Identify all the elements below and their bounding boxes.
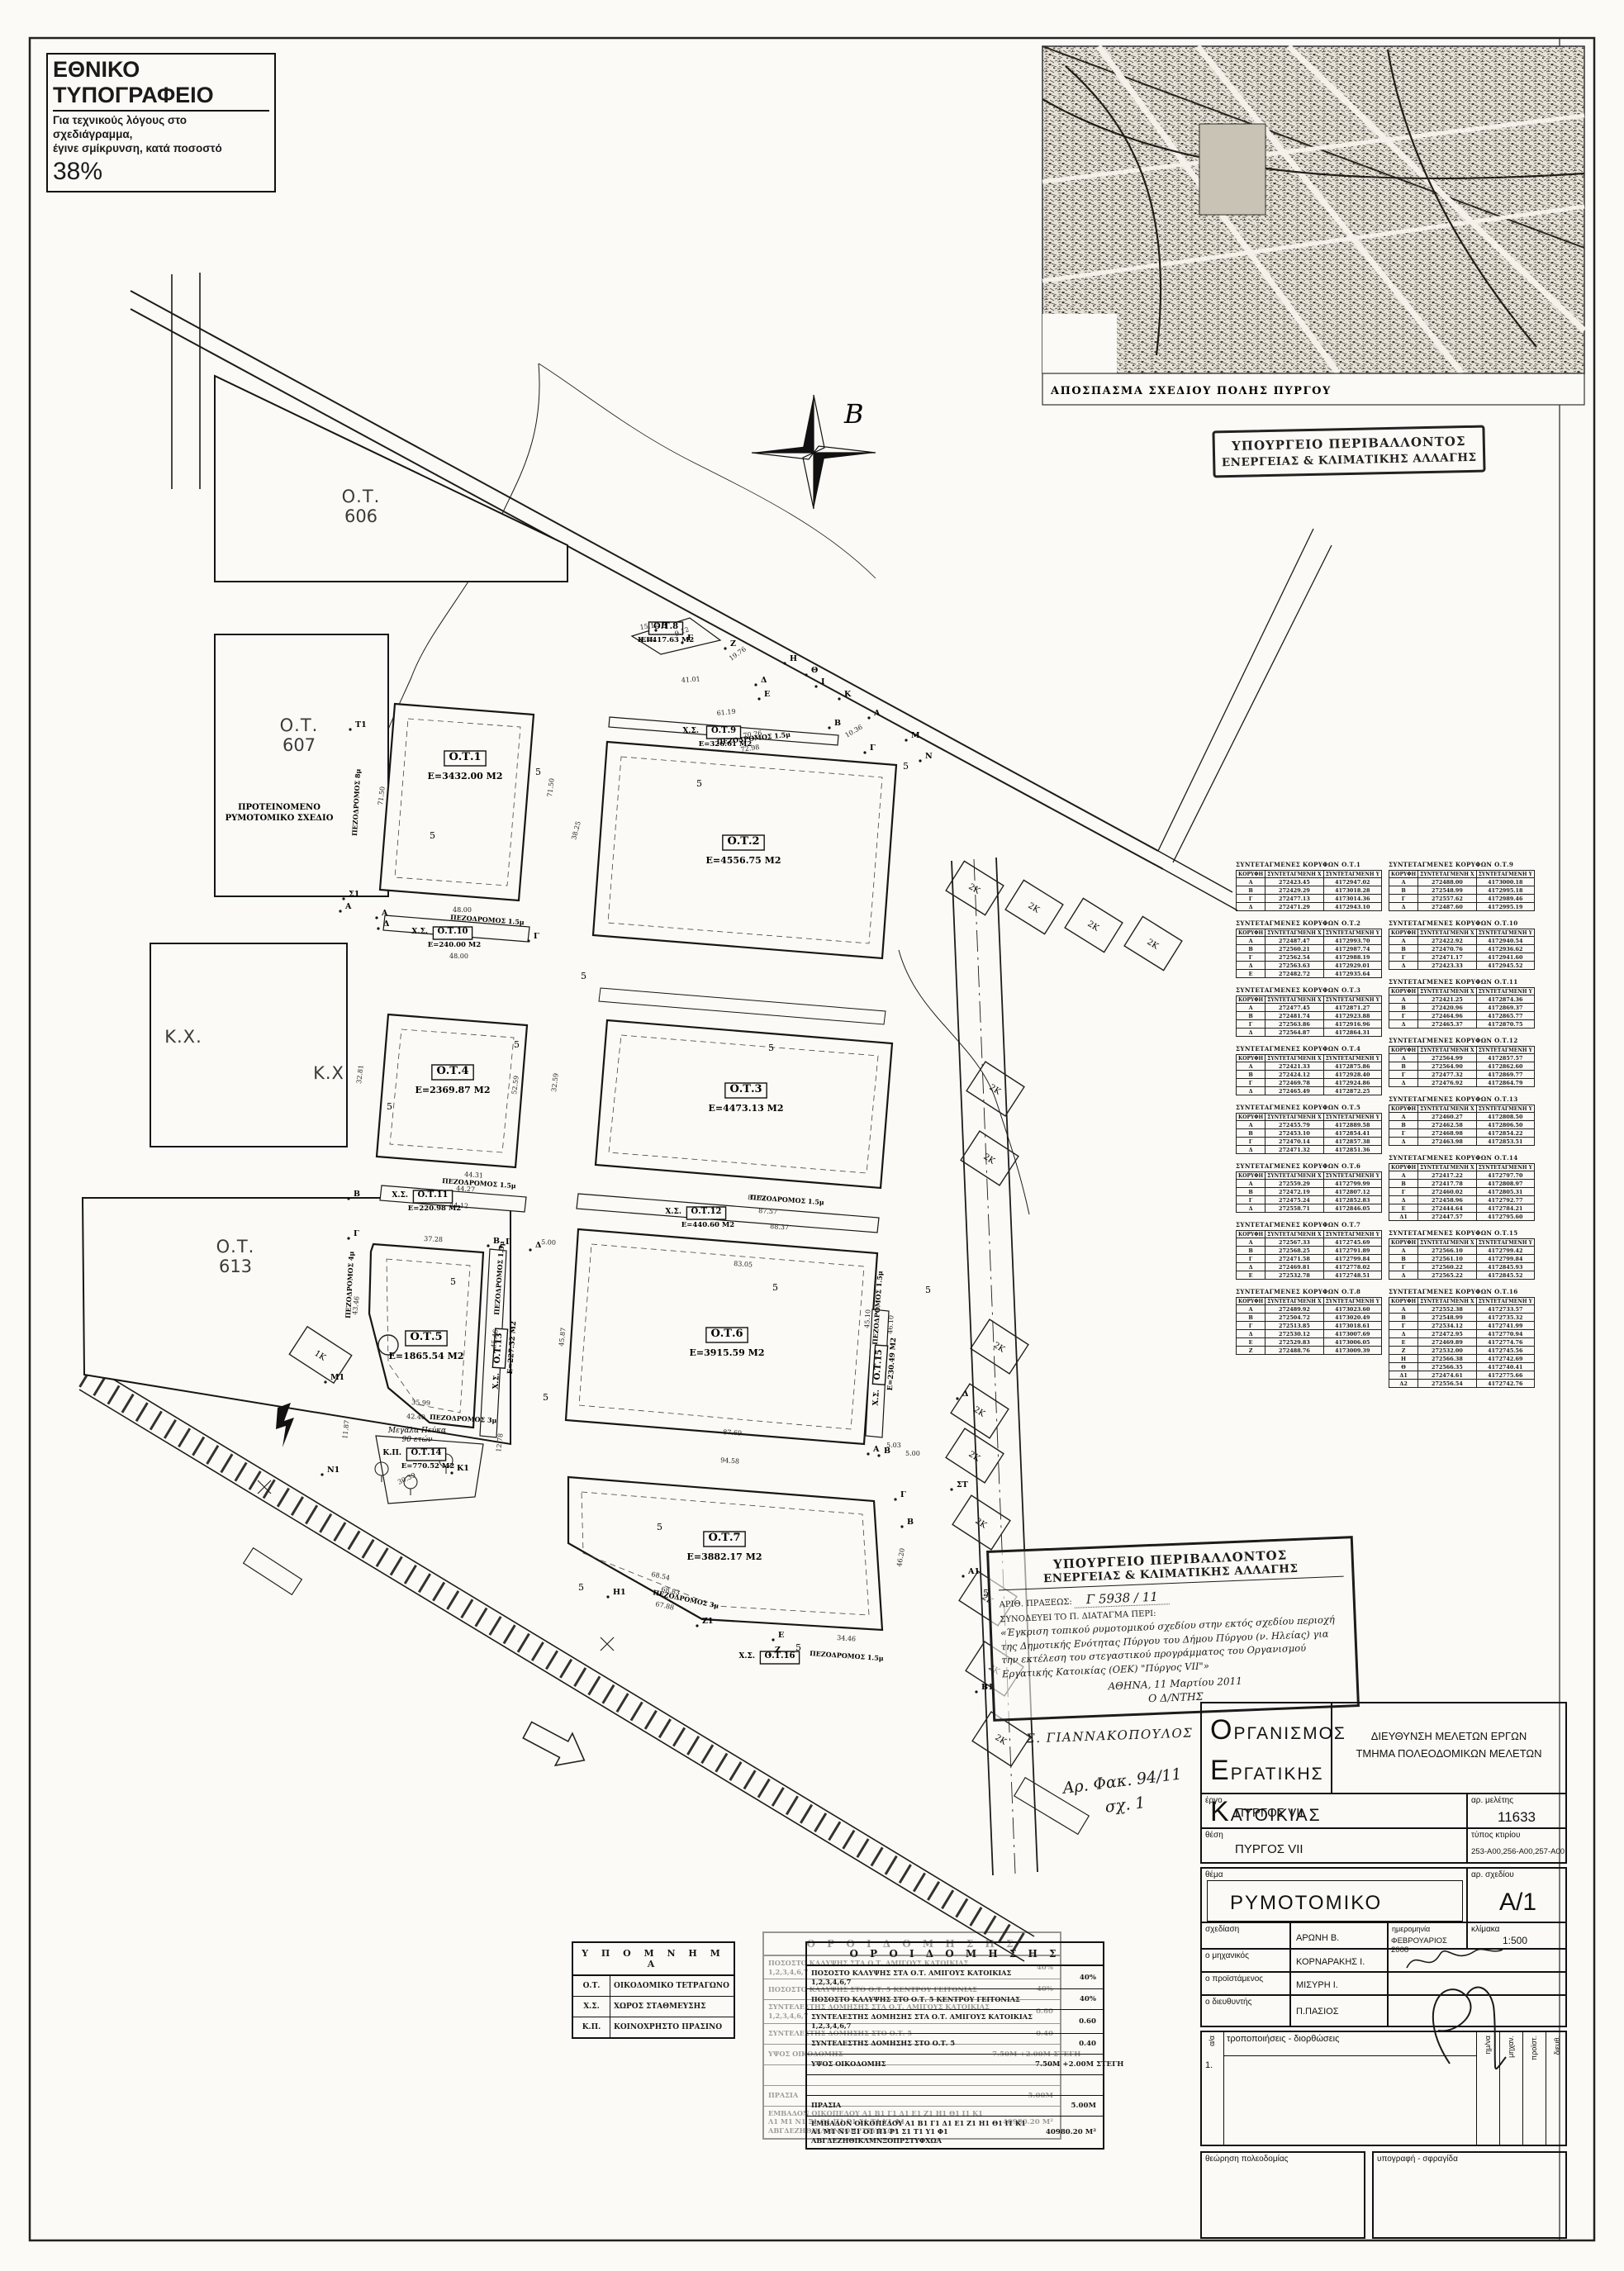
dimension-label: 38.25 bbox=[570, 820, 582, 840]
org-logo-cell: ΟΡΓΑΝΙΣΜΟΣΕΡΓΑΤΙΚΗΣΚΑΤΟΙΚΙΑΣ bbox=[1200, 1702, 1332, 1794]
strip-label: Χ.Σ.Ο.Τ.16 bbox=[738, 1651, 799, 1664]
city-map-excerpt: ΑΠΟΣΠΑΣΜΑ ΣΧΕΔΙΟΥ ΠΟΛΗΣ ΠΥΡΓΟΥ bbox=[1042, 46, 1584, 405]
director-value: Π.ΠΑΣΙΟΣ bbox=[1296, 2007, 1339, 2017]
subject-value: ΡΥΜΟΤΟΜΙΚΟ bbox=[1230, 1892, 1382, 1915]
dimension-label: 46.10 bbox=[886, 1315, 895, 1334]
director-signature-cell bbox=[1387, 1994, 1567, 2027]
printing-note-line2: έγινε σμίκρυνση, κατά ποσοστό bbox=[53, 142, 222, 154]
svg-text:2Κ: 2Κ bbox=[1085, 919, 1100, 934]
setback-label: 5 bbox=[450, 1276, 456, 1287]
vertex-label: Μ bbox=[911, 731, 920, 740]
department-cell: ΔΙΕΥΘΥΝΣΗ ΜΕΛΕΤΩΝ ΕΡΓΩΝ ΤΜΗΜΑ ΠΟΛΕΟΔΟΜΙΚ… bbox=[1331, 1702, 1567, 1794]
setback-label: 5 bbox=[535, 767, 541, 777]
svg-text:Ο.Τ.12: Ο.Τ.12 bbox=[691, 1207, 721, 1216]
dimension-label: 5.00 bbox=[905, 1450, 920, 1457]
revision-row-1: 1. bbox=[1205, 2060, 1213, 2070]
svg-text:Ε=240.00 Μ2: Ε=240.00 Μ2 bbox=[428, 941, 481, 949]
ministry-stamp: ΥΠΟΥΡΓΕΙΟ ΠΕΡΙΒΑΛΛΟΝΤΟΣ ΕΝΕΡΓΕΙΑΣ & ΚΛΙΜ… bbox=[1212, 425, 1485, 478]
revisions-label: τροποποιήσεις - διορθώσεις bbox=[1227, 2034, 1339, 2044]
coordinate-table: ΣΥΝΤΕΤΑΓΜΕΝΕΣ ΚΟΡΥΦΩΝ Ο.Τ.4ΚΟΡΥΦΗΣΥΝΤΕΤΑ… bbox=[1236, 1045, 1373, 1095]
printing-office-title: ΕΘΝΙΚΟ ΤΥΠΟΓΡΑΦΕΙΟ bbox=[53, 57, 269, 112]
drawing-no-cell: αρ. σχεδίου Α/1 bbox=[1466, 1867, 1567, 1923]
file-note-line2: σχ. 1 bbox=[1104, 1794, 1147, 1817]
compass-rose: Β bbox=[752, 395, 876, 509]
engineer-label: ο μηχανικός bbox=[1205, 1951, 1249, 1960]
svg-text:Μεγάλα Πεύκα: Μεγάλα Πεύκα bbox=[387, 1426, 446, 1435]
dimension-label: 10.36 bbox=[844, 723, 864, 739]
planning-approval-cell: θεώρηση πολεοδομίας bbox=[1200, 2151, 1365, 2239]
svg-text:Κ.Π.: Κ.Π. bbox=[638, 636, 655, 644]
setback-label: 5 bbox=[696, 778, 702, 789]
vertex-label: Α bbox=[381, 909, 388, 918]
vertex-label: Α1 bbox=[967, 1567, 980, 1576]
vertex-label: Γ bbox=[870, 744, 876, 753]
svg-text:Κ.Π.: Κ.Π. bbox=[382, 1449, 401, 1457]
dimension-label: 87.69 bbox=[723, 1428, 742, 1437]
legend-row: Κ.Π.ΚΟΙΝΟΧΡΗΣΤΟ ΠΡΑΣΙΝΟ bbox=[573, 2017, 734, 2037]
coordinate-table: ΣΥΝΤΕΤΑΓΜΕΝΕΣ ΚΟΡΥΦΩΝ Ο.Τ.6ΚΟΡΥΦΗΣΥΝΤΕΤΑ… bbox=[1236, 1162, 1373, 1213]
coordinate-table: ΣΥΝΤΕΤΑΓΜΕΝΕΣ ΚΟΡΥΦΩΝ Ο.Τ.7ΚΟΡΥΦΗΣΥΝΤΕΤΑ… bbox=[1236, 1221, 1373, 1280]
vertex-label: Γ bbox=[687, 634, 693, 643]
svg-text:607: 607 bbox=[283, 735, 316, 755]
dimension-label: 61.19 bbox=[716, 708, 736, 717]
coordinate-table: ΣΥΝΤΕΤΑΓΜΕΝΕΣ ΚΟΡΥΦΩΝ Ο.Τ.9ΚΟΡΥΦΗΣΥΝΤΕΤΑ… bbox=[1389, 861, 1526, 911]
setback-label: 5 bbox=[581, 971, 586, 981]
svg-text:2Κ: 2Κ bbox=[973, 1517, 988, 1531]
dimension-label: 88.37 bbox=[770, 1223, 789, 1232]
coordinate-table: ΣΥΝΤΕΤΑΓΜΕΝΕΣ ΚΟΡΥΦΩΝ Ο.Τ.16ΚΟΡΥΦΗΣΥΝΤΕΤ… bbox=[1389, 1288, 1526, 1388]
vertex-label: Ε bbox=[778, 1631, 784, 1640]
coordinate-table: ΣΥΝΤΕΤΑΓΜΕΝΕΣ ΚΟΡΥΦΩΝ Ο.Τ.13ΚΟΡΥΦΗΣΥΝΤΕΤ… bbox=[1389, 1095, 1526, 1146]
coordinate-table: ΣΥΝΤΕΤΑΓΜΕΝΕΣ ΚΟΡΥΦΩΝ Ο.Τ.11ΚΟΡΥΦΗΣΥΝΤΕΤ… bbox=[1389, 978, 1526, 1029]
svg-text:Ο.Τ.1: Ο.Τ.1 bbox=[449, 751, 481, 763]
vertex-label: Ζ1 bbox=[702, 1617, 714, 1626]
dimension-label: 44.31 bbox=[464, 1171, 483, 1180]
terms-row: ΣΥΝΤΕΛΕΣΤΗΣ ΔΟΜΗΣΗΣ ΣΤΟ Ο.Τ. 50.40 bbox=[807, 2033, 1103, 2054]
coordinate-table: ΣΥΝΤΕΤΑΓΜΕΝΕΣ ΚΟΡΥΦΩΝ Ο.Τ.8ΚΟΡΥΦΗΣΥΝΤΕΤΑ… bbox=[1236, 1288, 1373, 1355]
svg-text:90 ετών: 90 ετών bbox=[402, 1435, 433, 1444]
vertex-label: Α bbox=[872, 1445, 880, 1454]
vertex-label: Β bbox=[661, 621, 667, 630]
dimension-label: 34.46 bbox=[837, 1634, 856, 1643]
svg-text:Κ.Χ.: Κ.Χ. bbox=[164, 1027, 202, 1047]
vertex-label: Μ1 bbox=[330, 1373, 344, 1382]
svg-text:Χ.Σ.: Χ.Σ. bbox=[392, 1191, 408, 1200]
svg-text:Χ.Σ.: Χ.Σ. bbox=[682, 727, 699, 735]
signature-seal-cell: υπογραφή - σφραγίδα bbox=[1372, 2151, 1567, 2239]
terms-row: ΣΥΝΤΕΛΕΣΤΗΣ ΔΟΜΗΣΗΣ ΣΤΑ Ο.Τ. ΑΜΙΓΟΥΣ ΚΑΤ… bbox=[807, 2009, 1103, 2032]
pedestrian-road-label: ΠΕΖΟΔΡΟΜΟΣ 1.5μ bbox=[810, 1649, 884, 1662]
svg-text:Ο.Τ.10: Ο.Τ.10 bbox=[437, 927, 468, 936]
engineer-signature-cell bbox=[1387, 1948, 1567, 1973]
vertex-label: Γ bbox=[900, 1490, 906, 1499]
approval-stamp: ΥΠΟΥΡΓΕΙΟ ΠΕΡΙΒΑΛΛΟΝΤΟΣ ΕΝΕΡΓΕΙΑΣ & ΚΛΙΜ… bbox=[986, 1536, 1360, 1721]
drawing-no-value: Α/1 bbox=[1499, 1889, 1536, 1917]
vertex-label: Κ bbox=[844, 690, 852, 699]
vertex-label: Β bbox=[834, 719, 841, 728]
legend-title: Υ Π Ο Μ Ν Η Μ Α bbox=[573, 1943, 734, 1976]
engineer-value: ΚΟΡΝΑΡΑΚΗΣ Ι. bbox=[1296, 1957, 1365, 1967]
drawing-sheet: ΑΠΟΣΠΑΣΜΑ ΣΧΕΔΙΟΥ ΠΟΛΗΣ ΠΥΡΓΟΥ bbox=[0, 0, 1624, 2271]
dimension-label: 32.81 bbox=[355, 1064, 365, 1084]
vertex-label: Δ bbox=[535, 1241, 542, 1250]
dimension-label: 94.58 bbox=[720, 1456, 739, 1466]
setback-label: 5 bbox=[578, 1582, 584, 1593]
building-2k: 2Κ bbox=[951, 1384, 1009, 1438]
svg-text:2Κ: 2Κ bbox=[1026, 901, 1041, 915]
subject-cell: θέμα ΡΥΜΟΤΟΜΙΚΟ bbox=[1200, 1867, 1468, 1923]
setback-label: 5 bbox=[657, 1522, 662, 1532]
svg-text:Ε=3882.17 Μ2: Ε=3882.17 Μ2 bbox=[686, 1551, 762, 1562]
building-terms-table: Ο Ρ Ο Ι Δ Ο Μ Η Σ Η Σ ΠΟΣΟΣΤΟ ΚΑΛΥΨΗΣ ΣΤ… bbox=[805, 1941, 1104, 2150]
dept-line1: ΔΙΕΥΘΥΝΣΗ ΜΕΛΕΤΩΝ ΕΡΓΩΝ bbox=[1332, 1728, 1565, 1746]
dept-line2: ΤΜΗΜΑ ΠΟΛΕΟΔΟΜΙΚΩΝ ΜΕΛΕΤΩΝ bbox=[1332, 1746, 1565, 1763]
coordinate-table: ΣΥΝΤΕΤΑΓΜΕΝΕΣ ΚΟΡΥΦΩΝ Ο.Τ.5ΚΟΡΥΦΗΣΥΝΤΕΤΑ… bbox=[1236, 1104, 1373, 1154]
svg-text:Ο.Τ.2: Ο.Τ.2 bbox=[727, 835, 759, 848]
svg-text:613: 613 bbox=[219, 1257, 252, 1276]
coordinate-table: ΣΥΝΤΕΤΑΓΜΕΝΕΣ ΚΟΡΥΦΩΝ Ο.Τ.14ΚΟΡΥΦΗΣΥΝΤΕΤ… bbox=[1389, 1154, 1526, 1221]
dimension-label: 48.00 bbox=[453, 906, 472, 914]
setback-label: 5 bbox=[768, 1043, 774, 1053]
vertex-label: Δ bbox=[383, 919, 390, 929]
vertex-label: Α bbox=[344, 902, 352, 911]
ministry-stamp-line2: ΕΝΕΡΓΕΙΑΣ & ΚΛΙΜΑΤΙΚΗΣ ΑΛΛΑΓΗΣ bbox=[1218, 451, 1479, 470]
dimension-label: 45.87 bbox=[558, 1327, 567, 1347]
vertex-label: Ν bbox=[925, 752, 933, 761]
building-2k: 2Κ bbox=[966, 1062, 1024, 1116]
supervisor-value: ΜΙΣΥΡΗ Ι. bbox=[1296, 1980, 1338, 1990]
location-value: ΠΥΡΓΟΣ VII bbox=[1235, 1842, 1303, 1856]
vertex-label: Η1 bbox=[613, 1588, 626, 1597]
terms-row: ΠΡΑΣΙΑ5.00Μ bbox=[807, 2095, 1103, 2116]
svg-text:Κ.Χ: Κ.Χ bbox=[313, 1063, 344, 1083]
svg-text:Ε=230.49 Μ2: Ε=230.49 Μ2 bbox=[886, 1337, 898, 1391]
terms-row: ΠΟΣΟΣΤΟ ΚΑΛΥΨΗΣ ΣΤΟ Ο.Τ. 5 ΚΕΝΤΡΟΥ ΓΕΙΤΟ… bbox=[807, 1988, 1103, 2009]
coordinate-tables-right: ΣΥΝΤΕΤΑΓΜΕΝΕΣ ΚΟΡΥΦΩΝ Ο.Τ.9ΚΟΡΥΦΗΣΥΝΤΕΤΑ… bbox=[1389, 861, 1526, 1396]
printing-office-note: ΕΘΝΙΚΟ ΤΥΠΟΓΡΑΦΕΙΟ Για τεχνικούς λόγους … bbox=[46, 53, 276, 192]
dimension-label: 87.71 bbox=[748, 1194, 767, 1203]
setback-label: 5 bbox=[387, 1101, 392, 1112]
reduction-percent: 38% bbox=[53, 158, 102, 185]
vertex-label: Θ bbox=[811, 666, 818, 675]
coordinate-table: ΣΥΝΤΕΤΑΓΜΕΝΕΣ ΚΟΡΥΦΩΝ Ο.Τ.15ΚΟΡΥΦΗΣΥΝΤΕΤ… bbox=[1389, 1229, 1526, 1280]
svg-text:Ε=1865.54 Μ2: Ε=1865.54 Μ2 bbox=[388, 1351, 463, 1361]
dimension-label: 12.78 bbox=[495, 1432, 505, 1452]
setback-label: 5 bbox=[514, 1039, 520, 1050]
vertex-label: Β bbox=[907, 1518, 914, 1527]
legend-row: Χ.Σ.ΧΩΡΟΣ ΣΤΑΘΜΕΥΣΗΣ bbox=[573, 1996, 734, 2017]
coordinate-table: ΣΥΝΤΕΤΑΓΜΕΝΕΣ ΚΟΡΥΦΩΝ Ο.Τ.1ΚΟΡΥΦΗΣΥΝΤΕΤΑ… bbox=[1236, 861, 1373, 911]
revision-col-label: μηχαν. bbox=[1507, 2036, 1515, 2058]
dimension-label: 83.05 bbox=[734, 1260, 753, 1269]
svg-text:Ε=4473.13 Μ2: Ε=4473.13 Μ2 bbox=[708, 1103, 783, 1114]
vertex-label: Γ bbox=[534, 932, 539, 941]
svg-text:2Κ: 2Κ bbox=[981, 1152, 996, 1166]
vertex-label: Ι bbox=[821, 677, 825, 687]
svg-text:606: 606 bbox=[344, 506, 378, 526]
setback-label: 5 bbox=[772, 1282, 778, 1293]
building-2k: 2Κ bbox=[946, 861, 1004, 915]
supervisor-label: ο προϊστάμενος bbox=[1205, 1974, 1263, 1984]
vertex-label: Ν1 bbox=[327, 1466, 340, 1475]
setback-label: 5 bbox=[903, 761, 909, 772]
svg-text:Ο.Τ.4: Ο.Τ.4 bbox=[436, 1065, 468, 1077]
dimension-label: 44.12 bbox=[449, 1201, 468, 1210]
north-arrow-icon bbox=[276, 1403, 294, 1447]
vertex-label: Β bbox=[354, 1190, 360, 1199]
terms-row bbox=[807, 2074, 1103, 2095]
svg-text:Ο.Τ.3: Ο.Τ.3 bbox=[729, 1083, 762, 1095]
dimension-label: 87.57 bbox=[758, 1207, 777, 1216]
building-2k: 2Κ bbox=[971, 1319, 1028, 1374]
area-name: Ο.Τ.613 bbox=[216, 1237, 255, 1276]
building-2k: 2Κ bbox=[1005, 880, 1063, 934]
svg-text:Ε=440.60 Μ2: Ε=440.60 Μ2 bbox=[681, 1221, 734, 1229]
svg-text:Ε=2369.87 Μ2: Ε=2369.87 Μ2 bbox=[415, 1085, 490, 1095]
svg-text:2Κ: 2Κ bbox=[993, 1733, 1008, 1747]
svg-text:Ο.Τ.7: Ο.Τ.7 bbox=[708, 1532, 740, 1544]
protocol-label: ΑΡΙΘ. ΠΡΑΞΕΩΣ: bbox=[999, 1598, 1072, 1610]
vertex-label: Γ bbox=[506, 1238, 511, 1247]
svg-text:2Κ: 2Κ bbox=[966, 882, 981, 896]
svg-text:Χ.Σ.: Χ.Σ. bbox=[492, 1373, 501, 1390]
ministry-stamp-line1: ΥΠΟΥΡΓΕΙΟ ΠΕΡΙΒΑΛΛΟΝΤΟΣ bbox=[1218, 434, 1479, 454]
svg-text:Ο.Τ.6: Ο.Τ.6 bbox=[710, 1328, 743, 1340]
svg-text:Χ.Σ.: Χ.Σ. bbox=[411, 928, 428, 936]
svg-text:Χ.Σ.: Χ.Σ. bbox=[872, 1390, 881, 1406]
printing-note-line1: Για τεχνικούς λόγους στο σχεδιάγραμμα, bbox=[53, 114, 187, 140]
terms-row: ΕΜΒΑΔΟΝ ΟΙΚΟΠΕΔΟΥ Α1 Β1 Γ1 Δ1 Ε1 Ζ1 Η1 Θ… bbox=[807, 2116, 1103, 2148]
dimension-label: 37.28 bbox=[424, 1235, 443, 1243]
project-value: ΠΥΡΓΟΣ VII bbox=[1235, 1806, 1303, 1820]
building-2k: 2Κ bbox=[1065, 898, 1123, 952]
svg-text:Ε=4556.75 Μ2: Ε=4556.75 Μ2 bbox=[705, 855, 781, 866]
vertex-label: Κ1 bbox=[457, 1464, 469, 1473]
signature-seal-label: υπογραφή - σφραγίδα bbox=[1377, 2155, 1458, 2164]
building-type-cell: τύπος κτιρίου 253-Α00,256-Α00,257-Α00 bbox=[1466, 1827, 1567, 1864]
svg-text:Ε=3432.00 Μ2: Ε=3432.00 Μ2 bbox=[427, 771, 502, 782]
vertex-label: ΣΤ bbox=[957, 1480, 968, 1489]
director-label: ο διευθυντής bbox=[1205, 1998, 1251, 2007]
svg-text:Ε=3915.59 Μ2: Ε=3915.59 Μ2 bbox=[689, 1347, 764, 1358]
svg-text:Χ.Σ.: Χ.Σ. bbox=[665, 1208, 681, 1216]
vertex-label: Σ1 bbox=[349, 890, 359, 899]
study-no-value: 11633 bbox=[1498, 1809, 1536, 1826]
vertex-label: Β bbox=[884, 1447, 890, 1456]
svg-text:Ο.Τ.11: Ο.Τ.11 bbox=[417, 1190, 448, 1200]
svg-text:Ο.Τ.: Ο.Τ. bbox=[280, 715, 319, 735]
area-name: Κ.Χ. bbox=[164, 1027, 202, 1047]
svg-text:ΠΡΟΤΕΙΝΟΜΕΝΟ: ΠΡΟΤΕΙΝΟΜΕΝΟ bbox=[238, 803, 321, 812]
dimension-label: 72.98 bbox=[740, 744, 760, 753]
drafting-value: ΑΡΩΝΗ Β. bbox=[1296, 1933, 1339, 1943]
svg-text:Ο.Τ.5: Ο.Τ.5 bbox=[410, 1331, 442, 1343]
vertex-label: Γ bbox=[354, 1229, 359, 1238]
dimension-label: 71.50 bbox=[546, 777, 556, 797]
setback-label: 5 bbox=[795, 1642, 801, 1653]
dimension-label: 42.40 bbox=[406, 1413, 425, 1421]
org-name-line: ΕΡΓΑΤΙΚΗΣ bbox=[1210, 1751, 1331, 1791]
revision-col-label: προϊστ. bbox=[1530, 2036, 1538, 2060]
dimension-label: 11.87 bbox=[341, 1419, 351, 1439]
dimension-label: 41.01 bbox=[681, 675, 700, 684]
svg-text:ΡΥΜΟΤΟΜΙΚΟ ΣΧΕΔΙΟ: ΡΥΜΟΤΟΜΙΚΟ ΣΧΕΔΙΟ bbox=[226, 814, 334, 823]
revision-col-label: ημ/να bbox=[1484, 2036, 1492, 2054]
svg-text:Ο.Τ.: Ο.Τ. bbox=[342, 487, 381, 506]
setback-label: 5 bbox=[925, 1285, 931, 1295]
north-label: Β bbox=[843, 398, 864, 430]
dimension-label: 48.00 bbox=[449, 953, 468, 960]
dimension-label: 35.99 bbox=[411, 1399, 430, 1407]
building-terms-title: Ο Ρ Ο Ι Δ Ο Μ Η Σ Η Σ bbox=[807, 1943, 1103, 1966]
scale-value: 1:500 bbox=[1503, 1935, 1527, 1946]
coordinate-tables-left: ΣΥΝΤΕΤΑΓΜΕΝΕΣ ΚΟΡΥΦΩΝ Ο.Τ.1ΚΟΡΥΦΗΣΥΝΤΕΤΑ… bbox=[1236, 861, 1373, 1363]
svg-text:2Κ: 2Κ bbox=[1145, 938, 1160, 952]
coordinate-table: ΣΥΝΤΕΤΑΓΜΕΝΕΣ ΚΟΡΥΦΩΝ Ο.Τ.12ΚΟΡΥΦΗΣΥΝΤΕΤ… bbox=[1389, 1037, 1526, 1087]
svg-text:Ο.Τ.: Ο.Τ. bbox=[216, 1237, 255, 1257]
dimension-label: 45.10 bbox=[863, 1309, 872, 1328]
decree-subject-handwritten: «Έγκριση τοπικού ρυμοτομικού σχεδίου στη… bbox=[1000, 1613, 1347, 1681]
dimension-label: 44.27 bbox=[456, 1185, 475, 1194]
location-cell: θέση ΠΥΡΓΟΣ VII bbox=[1200, 1827, 1468, 1864]
direction-arrow-icon bbox=[519, 1714, 593, 1776]
area-name: Ο.Τ.606 bbox=[342, 487, 381, 526]
vertex-label: Τ1 bbox=[355, 720, 367, 729]
svg-text:2Κ: 2Κ bbox=[966, 1450, 981, 1464]
building-2k: 2Κ bbox=[1124, 916, 1182, 970]
coordinate-table: ΣΥΝΤΕΤΑΓΜΕΝΕΣ ΚΟΡΥΦΩΝ Ο.Τ.3ΚΟΡΥΦΗΣΥΝΤΕΤΑ… bbox=[1236, 986, 1373, 1037]
coordinate-table: ΣΥΝΤΕΤΑΓΜΕΝΕΣ ΚΟΡΥΦΩΝ Ο.Τ.10ΚΟΡΥΦΗΣΥΝΤΕΤ… bbox=[1389, 919, 1526, 970]
strip-label: Χ.Σ.Ο.Τ.12Ε=440.60 Μ2 bbox=[665, 1207, 734, 1229]
title-block: ΟΡΓΑΝΙΣΜΟΣΕΡΓΑΤΙΚΗΣΚΑΤΟΙΚΙΑΣ ΔΙΕΥΘΥΝΣΗ Μ… bbox=[1200, 1702, 1567, 2240]
vertex-label: Δ bbox=[962, 1390, 969, 1399]
org-name-line: ΟΡΓΑΝΙΣΜΟΣ bbox=[1210, 1710, 1331, 1751]
legend-table: Υ Π Ο Μ Ν Η Μ Α Ο.Τ.ΟΙΚΟΔΟΜΙΚΟ ΤΕΤΡΑΓΩΝΟ… bbox=[572, 1941, 735, 2039]
svg-text:2Κ: 2Κ bbox=[991, 1341, 1006, 1355]
revision-col-label: διευθ. bbox=[1553, 2036, 1561, 2055]
strip-label: Χ.Σ.Ο.Τ.10Ε=240.00 Μ2 bbox=[411, 927, 481, 949]
vertex-label: Λ bbox=[873, 709, 881, 718]
terms-row: ΥΨΟΣ ΟΙΚΟΔΟΜΗΣ7.50Μ +2.00Μ ΣΤΕΓΗ bbox=[807, 2054, 1103, 2074]
dimension-label: 5.00 bbox=[541, 1238, 556, 1247]
legend-row: Ο.Τ.ΟΙΚΟΔΟΜΙΚΟ ΤΕΤΡΑΓΩΝΟ bbox=[573, 1976, 734, 1996]
dimension-label: 46.20 bbox=[895, 1547, 906, 1567]
vertex-label: Β bbox=[493, 1237, 500, 1246]
vertex-label: Ζ bbox=[775, 1646, 781, 1655]
svg-text:Χ.Σ.: Χ.Σ. bbox=[738, 1652, 755, 1660]
area-name: Ο.Τ.607 bbox=[280, 715, 319, 755]
coordinate-table: ΣΥΝΤΕΤΑΓΜΕΝΕΣ ΚΟΡΥΦΩΝ Ο.Τ.2ΚΟΡΥΦΗΣΥΝΤΕΤΑ… bbox=[1236, 919, 1373, 978]
vertex-label: Ζ bbox=[730, 639, 736, 649]
setback-label: 5 bbox=[430, 830, 435, 841]
map-caption: ΑΠΟΣΠΑΣΜΑ ΣΧΕΔΙΟΥ ΠΟΛΗΣ ΠΥΡΓΟΥ bbox=[1050, 385, 1332, 397]
protocol-value: Γ 5938 / 11 bbox=[1075, 1589, 1171, 1608]
drafting-label: σχεδίαση bbox=[1205, 1925, 1239, 1934]
svg-text:Ο.Τ.9: Ο.Τ.9 bbox=[711, 726, 736, 735]
svg-text:Ε=770.52 Μ2: Ε=770.52 Μ2 bbox=[401, 1462, 454, 1470]
project-cell: έργο ΠΥΡΓΟΣ VII bbox=[1200, 1793, 1468, 1829]
dimension-label: 32.59 bbox=[550, 1072, 560, 1092]
vertex-label: Η bbox=[790, 654, 797, 663]
study-no-cell: αρ. μελέτης 11633 bbox=[1466, 1793, 1567, 1829]
svg-text:Ο.Τ.14: Ο.Τ.14 bbox=[411, 1448, 441, 1457]
setback-label: 5 bbox=[543, 1392, 548, 1403]
building-blocks bbox=[83, 376, 896, 1630]
building-type-value: 253-Α00,256-Α00,257-Α00 bbox=[1471, 1847, 1565, 1856]
revisions-table: α/α τροποποιήσεις - διορθώσεις ημ/ναμηχα… bbox=[1200, 2031, 1567, 2146]
area-name: Κ.Χ bbox=[313, 1063, 344, 1083]
terms-row: ΠΟΣΟΣΤΟ ΚΑΛΥΨΗΣ ΣΤΑ Ο.Τ. ΑΜΙΓΟΥΣ ΚΑΤΟΙΚΙ… bbox=[807, 1966, 1103, 1988]
planning-approval-label: θεώρηση πολεοδομίας bbox=[1205, 2155, 1288, 2164]
vertex-label: Δ bbox=[761, 676, 767, 685]
vertex-label: Ε bbox=[764, 690, 770, 699]
